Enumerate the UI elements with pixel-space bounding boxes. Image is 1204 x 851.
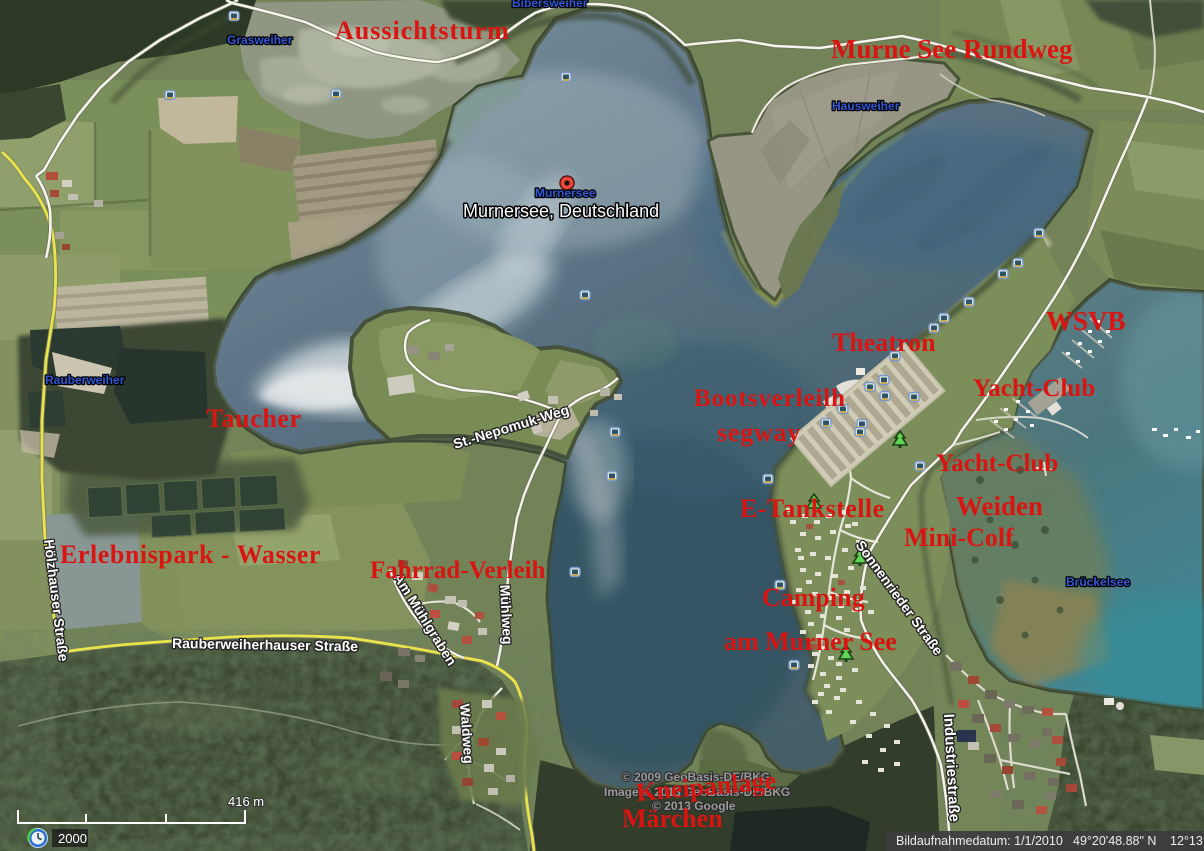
svg-text:WSVB: WSVB <box>1046 306 1126 336</box>
svg-text:E-Tankstelle: E-Tankstelle <box>740 494 885 523</box>
svg-text:Murnersee: Murnersee <box>535 186 596 200</box>
svg-text:Mühlweg: Mühlweg <box>497 584 516 645</box>
svg-text:Murne See Rundweg: Murne See Rundweg <box>831 34 1073 64</box>
svg-text:416 m: 416 m <box>228 794 264 809</box>
svg-text:Brückelsee: Brückelsee <box>1066 575 1130 589</box>
svg-text:Bibersweiher: Bibersweiher <box>512 0 588 10</box>
svg-text:Yacht-Club: Yacht-Club <box>936 450 1058 477</box>
svg-text:Murnersee, Deutschland: Murnersee, Deutschland <box>463 201 659 221</box>
svg-text:Weiden: Weiden <box>956 491 1043 521</box>
svg-text:Märchen: Märchen <box>622 804 723 833</box>
svg-text:segway: segway <box>717 418 801 447</box>
svg-text:Bildaufnahmedatum: 1/1/2010: Bildaufnahmedatum: 1/1/2010 <box>896 834 1063 848</box>
svg-text:12°13: 12°13 <box>1170 834 1203 848</box>
svg-text:Erlebnispark - Wasser: Erlebnispark - Wasser <box>60 540 321 569</box>
svg-text:Taucher: Taucher <box>206 404 302 433</box>
svg-text:Rauberweiherhauser Straße: Rauberweiherhauser Straße <box>172 635 358 654</box>
svg-text:2000: 2000 <box>58 831 87 846</box>
svg-text:Bootsverleilh: Bootsverleilh <box>694 385 846 412</box>
svg-text:Fahrrad-Verleih: Fahrrad-Verleih <box>370 557 546 584</box>
svg-text:Hausweiher: Hausweiher <box>832 99 900 113</box>
svg-text:Yacht-Club: Yacht-Club <box>973 375 1095 402</box>
svg-text:Mini-Colf: Mini-Colf <box>904 523 1014 552</box>
svg-text:Camping: Camping <box>762 583 865 612</box>
svg-text:am Murner See: am Murner See <box>724 627 897 656</box>
svg-text:Aussichtsturm: Aussichtsturm <box>335 16 510 45</box>
svg-text:Theatron: Theatron <box>832 328 936 357</box>
svg-text:49°20'48.88" N: 49°20'48.88" N <box>1073 834 1156 848</box>
svg-text:Rauberweiher: Rauberweiher <box>45 373 125 387</box>
svg-text:Grasweiher: Grasweiher <box>227 33 293 47</box>
